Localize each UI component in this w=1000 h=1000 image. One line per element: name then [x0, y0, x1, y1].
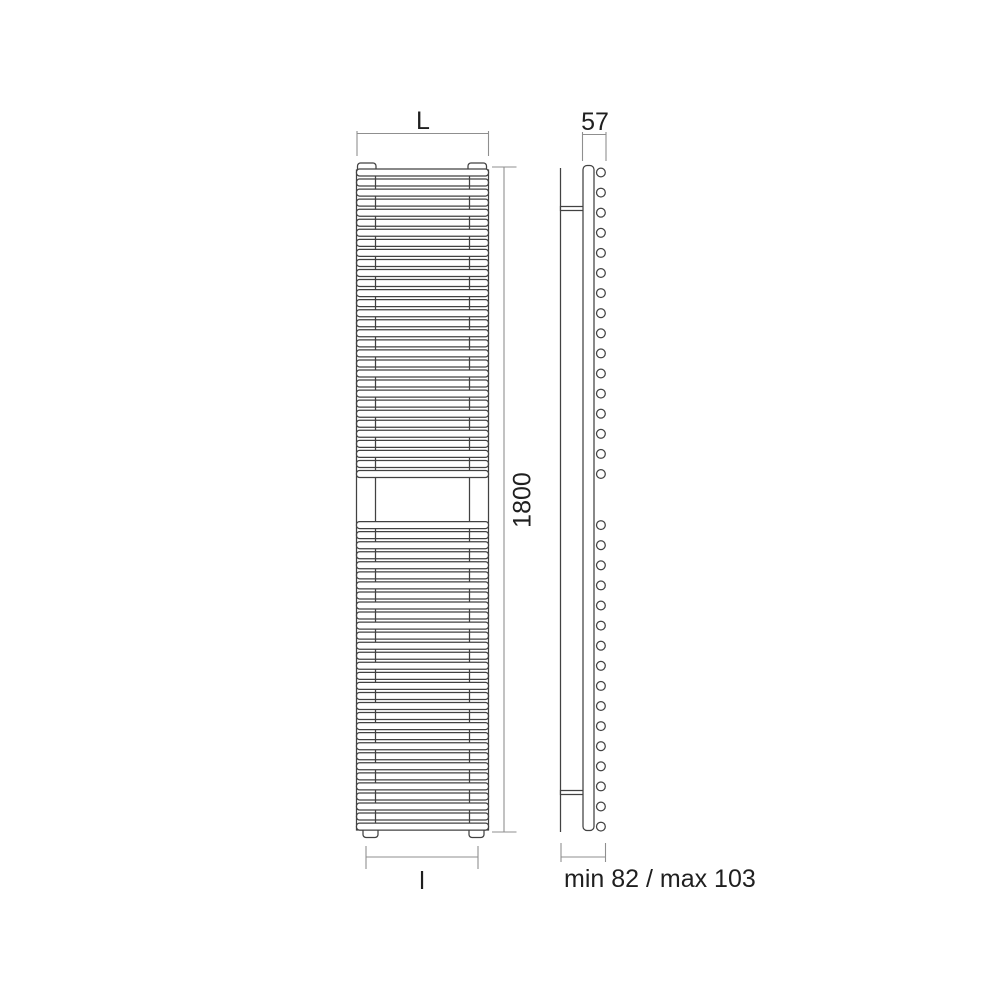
radiator-bar — [357, 400, 489, 407]
radiator-bar — [357, 390, 489, 397]
dim-depth-57: 57 — [581, 108, 609, 161]
dim-label-1800: 1800 — [509, 472, 537, 528]
radiator-bar — [357, 773, 489, 780]
bar-end-circle — [597, 702, 606, 711]
radiator-bar — [357, 280, 489, 287]
bar-end-circle — [597, 561, 606, 570]
bar-end-circle — [597, 521, 606, 530]
side-view: 57 min 82 / max 103 — [561, 108, 756, 893]
radiator-bar — [357, 542, 489, 549]
drawing-canvas: L 1800 l — [0, 0, 1000, 1000]
dim-wall-distance: min 82 / max 103 — [561, 843, 756, 893]
bar-end-circle — [597, 581, 606, 590]
radiator-bar — [357, 783, 489, 790]
dim-label-L: L — [416, 107, 430, 135]
radiator-bar — [357, 723, 489, 730]
radiator-bar — [357, 592, 489, 599]
radiator-bar — [357, 370, 489, 377]
radiator-bar — [357, 169, 489, 176]
radiator-bar — [357, 259, 489, 266]
bar-end-circle — [597, 802, 606, 811]
bar-end-circle — [597, 309, 606, 318]
bar-end-circle — [597, 409, 606, 418]
bar-end-circle — [597, 208, 606, 217]
radiator-bar — [357, 622, 489, 629]
radiator-bar — [357, 652, 489, 659]
radiator-bar — [357, 692, 489, 699]
bar-end-circle — [597, 682, 606, 691]
bar-end-circle — [597, 289, 606, 298]
radiator-bar — [357, 189, 489, 196]
dim-height-1800: 1800 — [492, 167, 537, 832]
radiator-bar — [357, 532, 489, 539]
bar-end-circle — [597, 228, 606, 237]
radiator-bar — [357, 450, 489, 457]
bar-end-circle — [597, 641, 606, 650]
radiator-bar — [357, 672, 489, 679]
radiator-bar — [357, 350, 489, 357]
radiator-bar — [357, 209, 489, 216]
radiator-bar — [357, 552, 489, 559]
bar-end-circle — [597, 762, 606, 771]
radiator-bar — [357, 179, 489, 186]
dim-label-57: 57 — [581, 108, 609, 136]
radiator-bar — [357, 562, 489, 569]
radiator-bar — [357, 440, 489, 447]
radiator-bar — [357, 682, 489, 689]
radiator-bar — [357, 803, 489, 810]
radiator-bar — [357, 642, 489, 649]
bottom-wall-bracket — [561, 791, 584, 795]
bar-end-circle — [597, 661, 606, 670]
radiator-bar — [357, 522, 489, 529]
bar-end-circle — [597, 389, 606, 398]
radiator-technical-drawing: L 1800 l — [0, 0, 1000, 1000]
radiator-bar — [357, 572, 489, 579]
bar-end-circle — [597, 722, 606, 731]
bar-end-circle — [597, 541, 606, 550]
front-tabs-feet — [358, 163, 487, 838]
radiator-bar — [357, 632, 489, 639]
radiator-bar — [357, 420, 489, 427]
bar-end-circle — [597, 269, 606, 278]
bar-end-circle — [597, 601, 606, 610]
radiator-bar — [357, 823, 489, 830]
radiator-bar — [357, 290, 489, 297]
front-view: L 1800 l — [357, 107, 537, 895]
radiator-bar — [357, 733, 489, 740]
bar-end-circle — [597, 470, 606, 479]
radiator-bar — [357, 330, 489, 337]
radiator-bar — [357, 662, 489, 669]
radiator-bar — [357, 471, 489, 478]
bar-end-circle — [597, 369, 606, 378]
radiator-bar — [357, 612, 489, 619]
radiator-bar — [357, 310, 489, 317]
bar-end-circle — [597, 742, 606, 751]
radiator-bar — [357, 793, 489, 800]
side-bar-end-circles — [597, 168, 606, 831]
radiator-bar — [357, 703, 489, 710]
dim-label-min-max: min 82 / max 103 — [564, 865, 756, 893]
radiator-bar — [357, 582, 489, 589]
radiator-bars-front — [357, 169, 489, 830]
radiator-bar — [357, 199, 489, 206]
bar-end-circle — [597, 429, 606, 438]
dim-width-L: L — [357, 107, 489, 156]
dim-label-l: l — [419, 867, 425, 895]
bar-end-circle — [597, 349, 606, 358]
bar-end-circle — [597, 188, 606, 197]
radiator-bar — [357, 410, 489, 417]
side-collector-profile — [583, 166, 594, 831]
radiator-bar — [357, 813, 489, 820]
radiator-bar — [357, 460, 489, 467]
radiator-bar — [357, 300, 489, 307]
bar-end-circle — [597, 450, 606, 459]
radiator-bar — [357, 239, 489, 246]
radiator-bar — [357, 602, 489, 609]
bar-end-circle — [597, 782, 606, 791]
radiator-bar — [357, 743, 489, 750]
radiator-bar — [357, 229, 489, 236]
radiator-bar — [357, 320, 489, 327]
radiator-bar — [357, 763, 489, 770]
radiator-bar — [357, 249, 489, 256]
radiator-bar — [357, 270, 489, 277]
top-wall-bracket — [561, 207, 584, 211]
bar-end-circle — [597, 822, 606, 831]
dim-width-l: l — [366, 846, 478, 895]
radiator-bar — [357, 713, 489, 720]
bar-end-circle — [597, 168, 606, 177]
radiator-bar — [357, 219, 489, 226]
radiator-bar — [357, 753, 489, 760]
radiator-bar — [357, 430, 489, 437]
bar-end-circle — [597, 249, 606, 258]
radiator-bar — [357, 380, 489, 387]
radiator-bar — [357, 340, 489, 347]
bar-end-circle — [597, 329, 606, 338]
radiator-bar — [357, 360, 489, 367]
bar-end-circle — [597, 621, 606, 630]
